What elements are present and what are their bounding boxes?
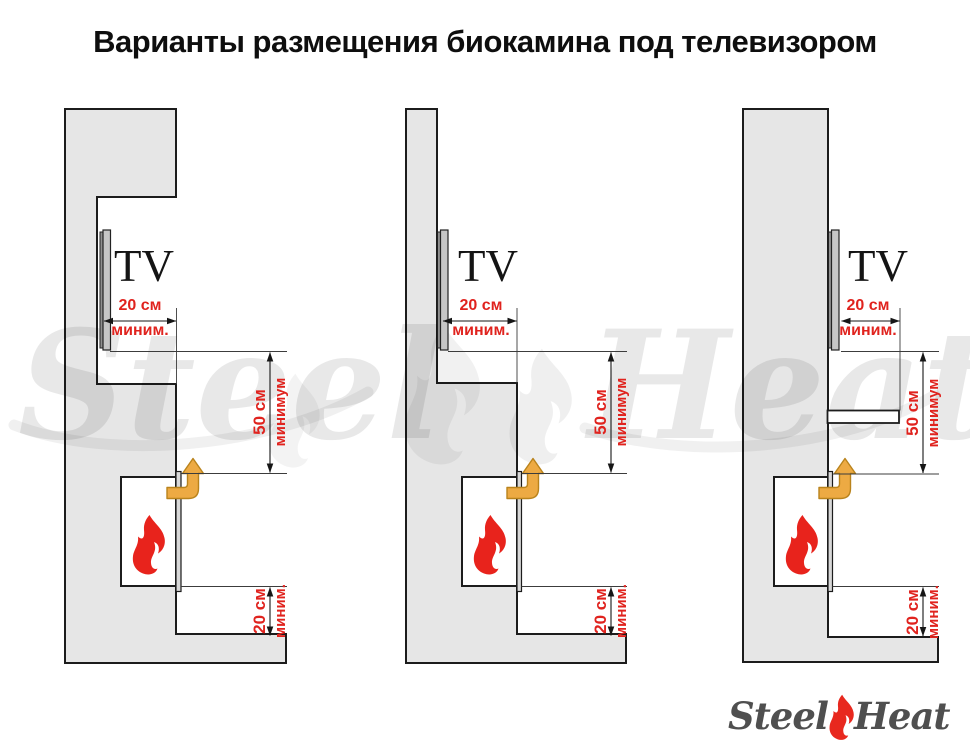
protective-shelf [828,411,900,424]
tv-panel [438,230,449,350]
watermark-steel-text: Steel [18,298,443,474]
watermark-flame-icon [509,349,571,465]
infographic-canvas: Steel Heat [0,0,970,749]
tv-panel [829,230,840,350]
diagram-scene: Steel Heat [0,0,970,749]
tv-panel [100,230,111,350]
